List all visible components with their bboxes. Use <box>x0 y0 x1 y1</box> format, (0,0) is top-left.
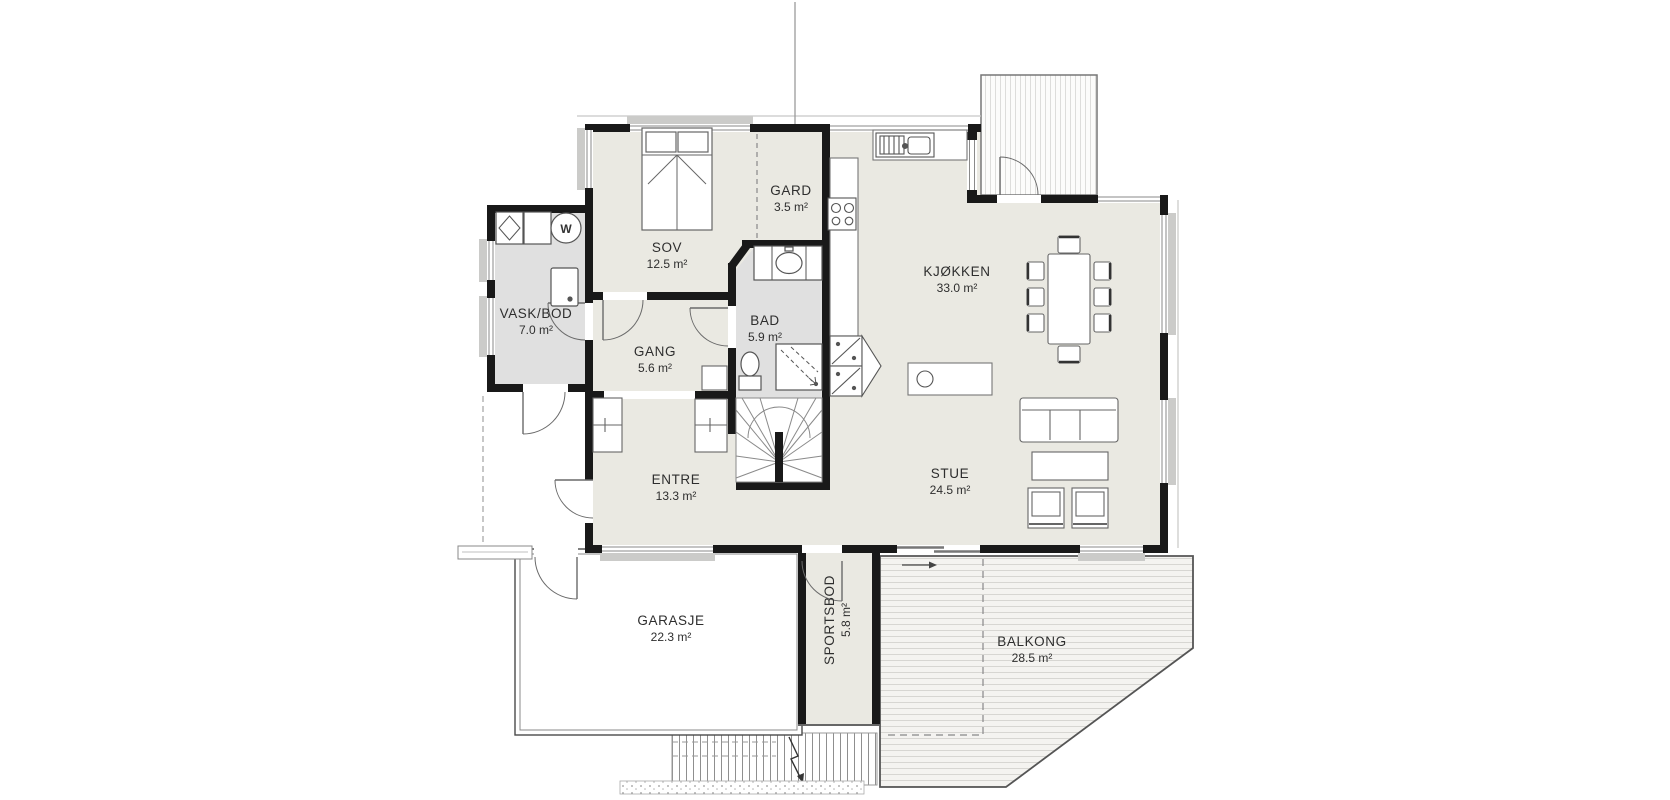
jog-window <box>967 140 977 190</box>
kitchen-island <box>908 363 992 395</box>
kitchen-tall-cabinets <box>830 158 858 336</box>
exterior-stairs <box>672 733 877 785</box>
wardrobe <box>695 399 727 452</box>
shower <box>776 344 822 390</box>
porch-deck <box>981 75 1097 195</box>
gravel-strip <box>620 781 864 794</box>
sov-left-window <box>577 128 593 190</box>
entry-step <box>458 546 532 559</box>
laundry-sink-unit <box>496 212 523 244</box>
stove <box>828 198 856 230</box>
right-window-b <box>1160 398 1176 485</box>
water-heater <box>551 268 578 306</box>
dining-table <box>1048 254 1090 344</box>
wardrobe <box>593 398 622 452</box>
toilet <box>739 352 761 390</box>
hall-cabinet <box>702 366 727 390</box>
bathroom-vanity <box>754 246 822 280</box>
armchair <box>1028 488 1064 528</box>
bottom-window-a <box>600 545 715 561</box>
annex-window-a <box>479 239 495 282</box>
washing-machine-label: W <box>560 222 572 236</box>
coffee-table <box>1032 452 1108 480</box>
stair-newel-wall <box>775 432 783 482</box>
washing-machine: W <box>551 213 581 243</box>
laundry-cabinet <box>524 212 551 244</box>
garage-door-opening <box>534 546 578 557</box>
garage-outline <box>515 546 802 735</box>
bed <box>642 128 712 230</box>
bottom-window-b <box>1078 545 1145 561</box>
floorplan-canvas: W <box>0 0 1670 800</box>
right-window-a <box>1160 213 1176 335</box>
sofa <box>1020 398 1118 442</box>
armchair <box>1072 488 1108 528</box>
annex-window-b <box>479 296 495 357</box>
kitchen-sink <box>876 133 934 157</box>
floorplan-drawing: W <box>0 0 1670 800</box>
kitchen-glass-east <box>1098 195 1160 203</box>
interior-stairs <box>736 398 822 482</box>
